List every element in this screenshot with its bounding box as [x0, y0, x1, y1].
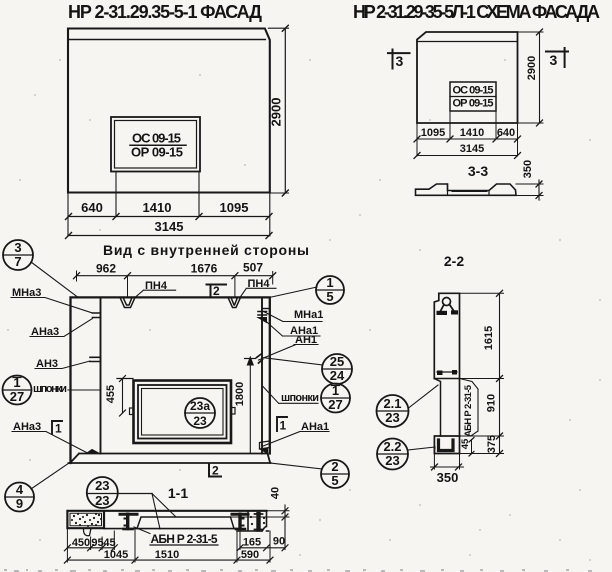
svg-text:1: 1: [280, 419, 287, 433]
svg-text:Вид с внутренней стороны: Вид с внутренней стороны: [103, 242, 309, 258]
svg-text:АБН Р 2-31-5: АБН Р 2-31-5: [151, 532, 218, 546]
svg-text:3: 3: [14, 240, 21, 255]
svg-text:640: 640: [497, 127, 515, 139]
svg-text:1410: 1410: [143, 200, 172, 215]
svg-text:2.2: 2.2: [383, 439, 401, 454]
svg-text:3: 3: [550, 52, 558, 68]
svg-text:ОР 09-15: ОР 09-15: [453, 98, 494, 110]
svg-text:1095: 1095: [220, 200, 249, 215]
svg-text:962: 962: [96, 262, 116, 276]
svg-text:23: 23: [95, 478, 109, 493]
svg-text:507: 507: [243, 261, 263, 275]
svg-text:375: 375: [486, 435, 498, 453]
svg-text:350: 350: [522, 160, 534, 178]
svg-text:1095: 1095: [421, 127, 445, 139]
svg-text:4: 4: [16, 482, 24, 497]
svg-text:ОС 09-15: ОС 09-15: [453, 85, 494, 97]
svg-text:3145: 3145: [460, 143, 484, 155]
svg-text:2900: 2900: [269, 98, 284, 127]
svg-text:2900: 2900: [526, 56, 538, 80]
svg-text:АБН Р 2-31-5: АБН Р 2-31-5: [463, 384, 474, 437]
svg-text:1045: 1045: [104, 549, 128, 561]
svg-text:2: 2: [212, 464, 219, 478]
svg-text:2-2: 2-2: [444, 253, 464, 269]
svg-text:ОР 09-15: ОР 09-15: [131, 145, 183, 160]
svg-text:1: 1: [55, 422, 62, 436]
svg-text:1410: 1410: [460, 127, 484, 139]
svg-text:350: 350: [437, 470, 459, 485]
svg-text:23а: 23а: [190, 399, 210, 413]
svg-text:шпонки: шпонки: [281, 392, 319, 404]
svg-text:2: 2: [331, 459, 338, 474]
svg-text:590: 590: [241, 549, 259, 561]
svg-text:27: 27: [328, 397, 342, 412]
svg-text:450: 450: [72, 537, 90, 549]
svg-text:9: 9: [16, 496, 23, 511]
svg-text:3-3: 3-3: [468, 163, 488, 179]
svg-text:МНа1: МНа1: [294, 309, 323, 321]
svg-text:640: 640: [81, 200, 103, 215]
svg-text:24: 24: [330, 368, 345, 383]
svg-text:1800: 1800: [234, 382, 246, 406]
svg-text:40: 40: [270, 487, 282, 499]
svg-text:1: 1: [326, 275, 333, 290]
svg-text:23: 23: [385, 410, 399, 425]
svg-text:1510: 1510: [155, 549, 179, 561]
svg-text:НР 2-31.29-35-5Л-1 СХЕМА ФАСАД: НР 2-31.29-35-5Л-1 СХЕМА ФАСАДА: [353, 2, 600, 22]
svg-text:165: 165: [243, 537, 261, 549]
svg-text:27: 27: [10, 389, 24, 404]
svg-text:1676: 1676: [191, 262, 218, 276]
svg-text:2.1: 2.1: [383, 396, 401, 411]
svg-text:7: 7: [14, 254, 21, 269]
svg-text:5: 5: [331, 473, 338, 488]
svg-text:23: 23: [95, 493, 109, 508]
svg-text:3145: 3145: [155, 219, 184, 234]
svg-text:ОС 09-15: ОС 09-15: [132, 131, 181, 146]
svg-text:45: 45: [103, 537, 115, 549]
svg-text:шпонки: шпонки: [33, 383, 67, 395]
svg-text:3: 3: [396, 53, 404, 69]
svg-text:25: 25: [330, 354, 344, 369]
svg-text:95: 95: [91, 537, 103, 549]
svg-text:5: 5: [326, 289, 333, 304]
svg-text:910: 910: [486, 394, 498, 412]
svg-text:23: 23: [193, 414, 207, 428]
svg-text:1-1: 1-1: [168, 485, 188, 501]
svg-text:1615: 1615: [483, 326, 495, 350]
svg-text:45: 45: [460, 438, 471, 449]
svg-text:2: 2: [213, 284, 220, 298]
svg-text:90: 90: [273, 536, 285, 548]
svg-text:НР 2-31.29.35-5-1 ФАСАД: НР 2-31.29.35-5-1 ФАСАД: [68, 2, 262, 22]
svg-text:23: 23: [385, 453, 399, 468]
svg-text:455: 455: [105, 385, 117, 403]
